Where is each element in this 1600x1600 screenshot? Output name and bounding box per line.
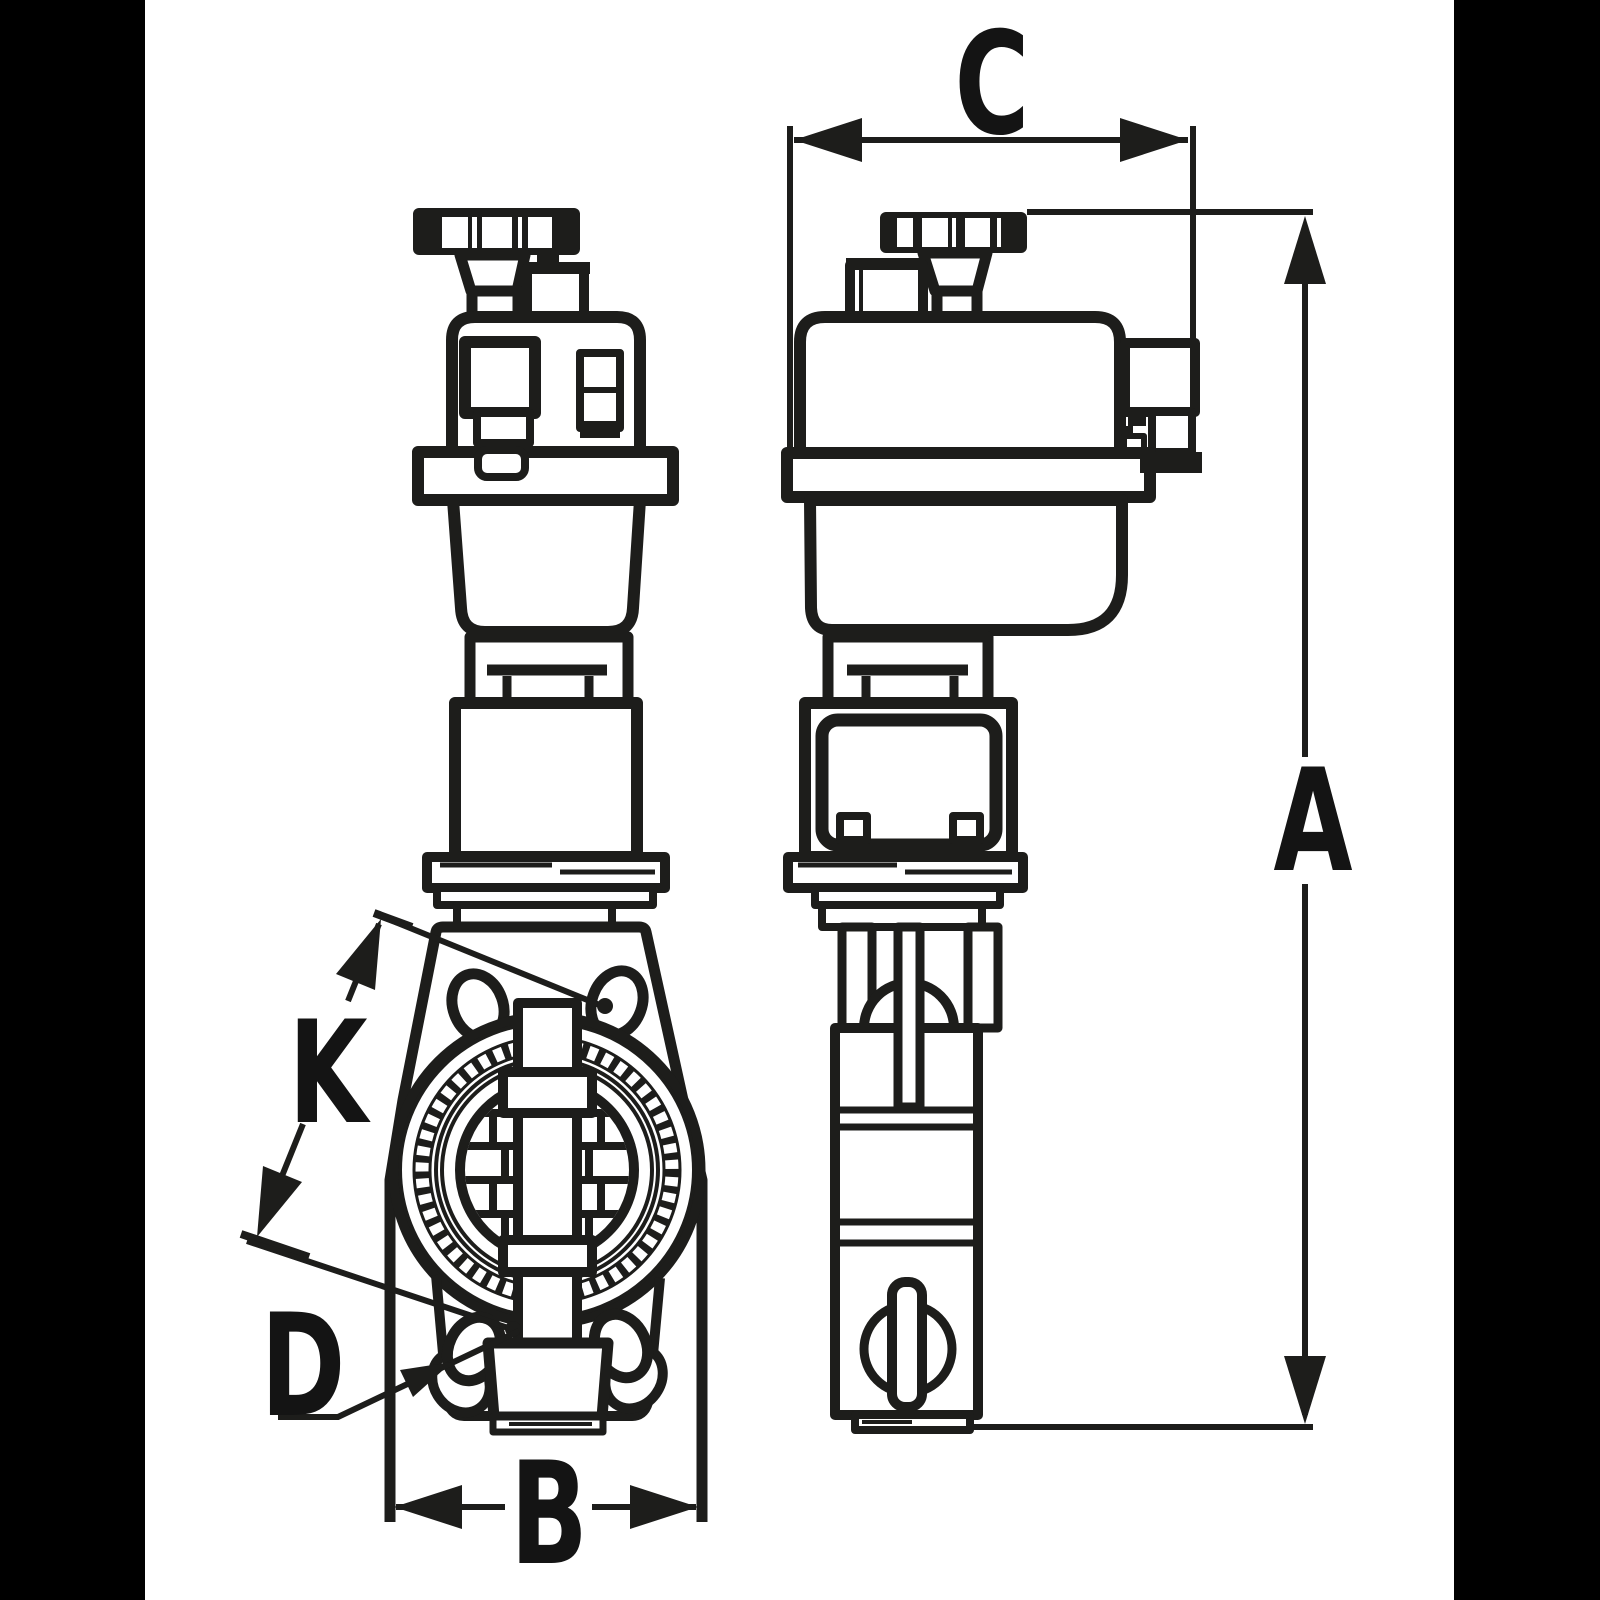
side-handwheel bbox=[880, 212, 1027, 253]
side-connector-pad bbox=[1140, 452, 1202, 473]
side-neck bbox=[828, 637, 988, 703]
front-handwheel bbox=[413, 208, 580, 255]
dim-k-dot-top bbox=[597, 998, 613, 1014]
side-leg-right bbox=[968, 927, 998, 1028]
side-centre-stem bbox=[898, 927, 920, 1107]
side-stem bbox=[923, 253, 987, 317]
front-disc-stem-top bbox=[518, 1003, 577, 1078]
dim-label-b: B bbox=[510, 1432, 588, 1597]
front-bonnet bbox=[453, 500, 640, 632]
front-butterfly-disc bbox=[503, 1072, 592, 1272]
drawing-canvas: C A K D B bbox=[0, 0, 1600, 1600]
dim-label-a: A bbox=[1273, 739, 1352, 904]
dim-label-k: K bbox=[288, 991, 371, 1156]
side-bonnet bbox=[810, 500, 1122, 630]
dim-label-c: C bbox=[954, 2, 1029, 167]
side-flange bbox=[787, 453, 1150, 497]
side-handle-tab bbox=[892, 1282, 922, 1407]
front-block bbox=[455, 703, 637, 857]
side-foot bbox=[855, 1415, 970, 1430]
front-neck bbox=[470, 637, 628, 703]
front-top-box bbox=[525, 255, 590, 317]
front-flange bbox=[418, 452, 673, 500]
side-top-box bbox=[846, 264, 925, 318]
letterbox-left bbox=[0, 0, 145, 1600]
front-stem bbox=[460, 255, 525, 317]
valve-dimension-drawing: C A K D B bbox=[0, 0, 1600, 1600]
front-foot bbox=[488, 1343, 608, 1417]
front-actuator-body bbox=[452, 317, 640, 455]
side-connector-box bbox=[1124, 343, 1195, 452]
side-block bbox=[805, 703, 1012, 857]
front-flange-tab bbox=[478, 450, 525, 477]
side-actuator-body bbox=[800, 317, 1120, 453]
letterbox-right bbox=[1454, 0, 1600, 1600]
dim-label-d: D bbox=[261, 1284, 346, 1449]
